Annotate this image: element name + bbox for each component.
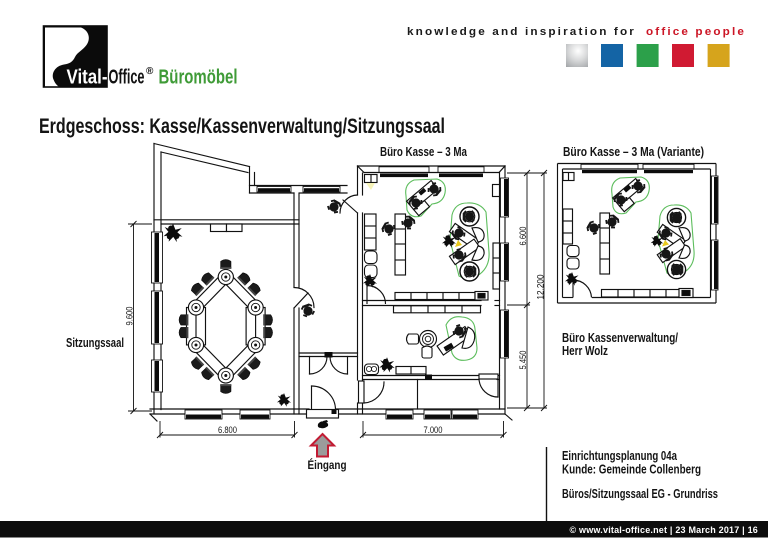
svg-text:7.000: 7.000 bbox=[424, 425, 443, 435]
svg-text:Kunde: Gemeinde Collenberg: Kunde: Gemeinde Collenberg bbox=[562, 463, 701, 477]
svg-text:Büromöbel: Büromöbel bbox=[159, 67, 238, 89]
svg-text:6.800: 6.800 bbox=[218, 425, 237, 435]
svg-text:®: ® bbox=[146, 66, 154, 77]
svg-text:Herr Wolz: Herr Wolz bbox=[562, 344, 608, 358]
svg-text:Büro Kasse – 3 Ma: Büro Kasse – 3 Ma bbox=[380, 144, 468, 159]
svg-text:Büros/Sitzungssaal EG - Grundr: Büros/Sitzungssaal EG - Grundriss bbox=[562, 487, 718, 501]
svg-text:Vital-: Vital- bbox=[67, 67, 108, 89]
svg-text:Erdgeschoss: Kasse/Kassenverwa: Erdgeschoss: Kasse/Kassenverwaltung/Sitz… bbox=[39, 115, 445, 138]
svg-text:Sitzungssaal: Sitzungssaal bbox=[66, 335, 124, 350]
svg-text:office people: office people bbox=[646, 26, 746, 38]
svg-text:Office: Office bbox=[109, 67, 145, 89]
svg-text:9.600: 9.600 bbox=[125, 307, 135, 326]
svg-text:5.450: 5.450 bbox=[518, 351, 528, 370]
svg-text:Einrichtungsplanung 04a: Einrichtungsplanung 04a bbox=[562, 449, 678, 463]
svg-text:© www.vital-office.net | 2: © www.vital-office.net | 23 March 2017 |… bbox=[570, 525, 759, 535]
svg-text:Éingang: Éingang bbox=[308, 457, 347, 472]
svg-text:12.200: 12.200 bbox=[536, 275, 546, 300]
svg-text:Büro Kasse – 3 Ma (Variante): Büro Kasse – 3 Ma (Variante) bbox=[563, 144, 704, 159]
svg-text:knowledge and inspiration for: knowledge and inspiration for bbox=[407, 26, 636, 38]
svg-text:Büro Kassenverwaltung/: Büro Kassenverwaltung/ bbox=[562, 331, 678, 345]
svg-text:6.600: 6.600 bbox=[518, 227, 528, 246]
